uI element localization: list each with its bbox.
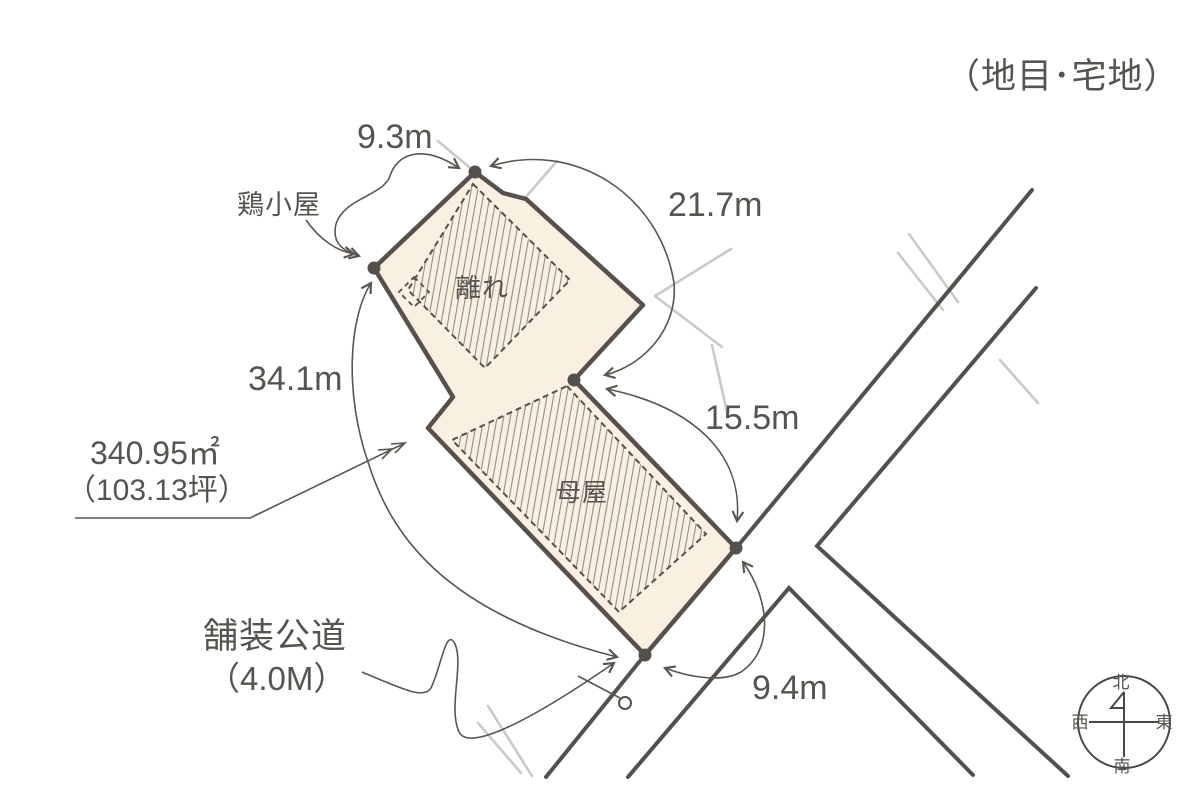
chicken-coop-label: 鶏小屋	[237, 190, 321, 220]
land-category-title: （地目･宅地）	[945, 57, 1180, 96]
compass-north-label: 北	[1113, 673, 1130, 692]
compass-south-label: 南	[1114, 757, 1131, 776]
compass-labels: 北 南 西 東	[1072, 673, 1173, 776]
compass-east-label: 東	[1156, 713, 1173, 732]
annex-label: 離れ	[455, 273, 509, 303]
area-leader-arrowhead	[378, 449, 392, 459]
road-edge-west-south	[546, 656, 644, 777]
site-plan-page: 北 南 西 東 （地目･宅地） 9.3m 21.7m 15.5m 34.1m 9…	[0, 0, 1200, 800]
corner-dot	[568, 374, 581, 387]
dim-label-34-1m: 34.1m	[248, 360, 343, 398]
corner-dot	[368, 262, 381, 275]
compass-west-label: 西	[1072, 713, 1089, 732]
boundary-tick	[438, 141, 475, 172]
road-edge-east-and-branch-north	[817, 288, 1068, 776]
boundary-tick	[1000, 360, 1038, 403]
utility-pole-icon	[619, 697, 631, 709]
road-width-label: （4.0M）	[207, 660, 346, 697]
boundary-tick	[525, 161, 557, 198]
site-plan-diagram: 北 南 西 東 （地目･宅地） 9.3m 21.7m 15.5m 34.1m 9…	[0, 0, 1200, 800]
corner-dot	[730, 542, 743, 555]
utility-pole-stem	[578, 676, 620, 698]
corner-dot	[639, 649, 652, 662]
boundary-tick	[655, 296, 722, 347]
dim-label-9-4m: 9.4m	[752, 669, 828, 707]
dim-label-9-3m: 9.3m	[357, 118, 433, 156]
main-house-label: 母屋	[556, 479, 608, 507]
area-tsubo-label: （103.13坪）	[66, 474, 248, 507]
road-name-label: 舗装公道	[203, 617, 347, 656]
compass-north-arrow-icon	[1111, 692, 1124, 708]
boundary-tick	[909, 234, 958, 302]
dim-label-15-5m: 15.5m	[705, 399, 800, 437]
dim-label-21-7m: 21.7m	[668, 186, 763, 224]
road-label-leader	[362, 640, 614, 738]
boundary-tick	[898, 253, 943, 310]
area-sqm-label: 340.95㎡	[90, 435, 220, 471]
chicken-coop-leader	[306, 220, 354, 254]
road-edge-west-north	[737, 190, 1032, 547]
corner-dot	[469, 166, 482, 179]
